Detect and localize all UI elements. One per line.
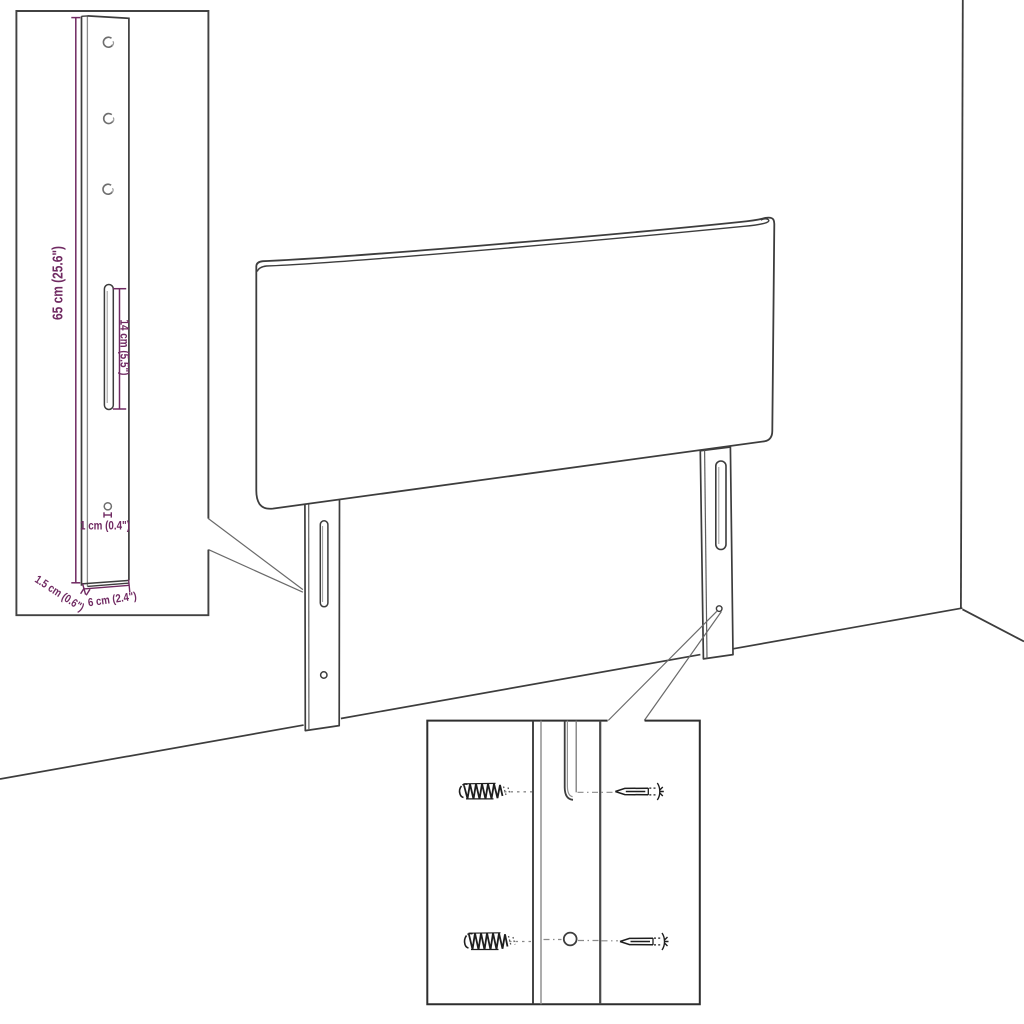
svg-text:14 cm (5.5"): 14 cm (5.5") — [118, 320, 132, 376]
svg-text:1 cm (0.4"): 1 cm (0.4") — [80, 521, 130, 533]
svg-text:1.5 cm (0.6"): 1.5 cm (0.6") — [32, 574, 86, 615]
svg-text:6 cm (2.4"): 6 cm (2.4") — [87, 591, 137, 610]
svg-text:65 cm (25.6"): 65 cm (25.6") — [50, 246, 67, 320]
